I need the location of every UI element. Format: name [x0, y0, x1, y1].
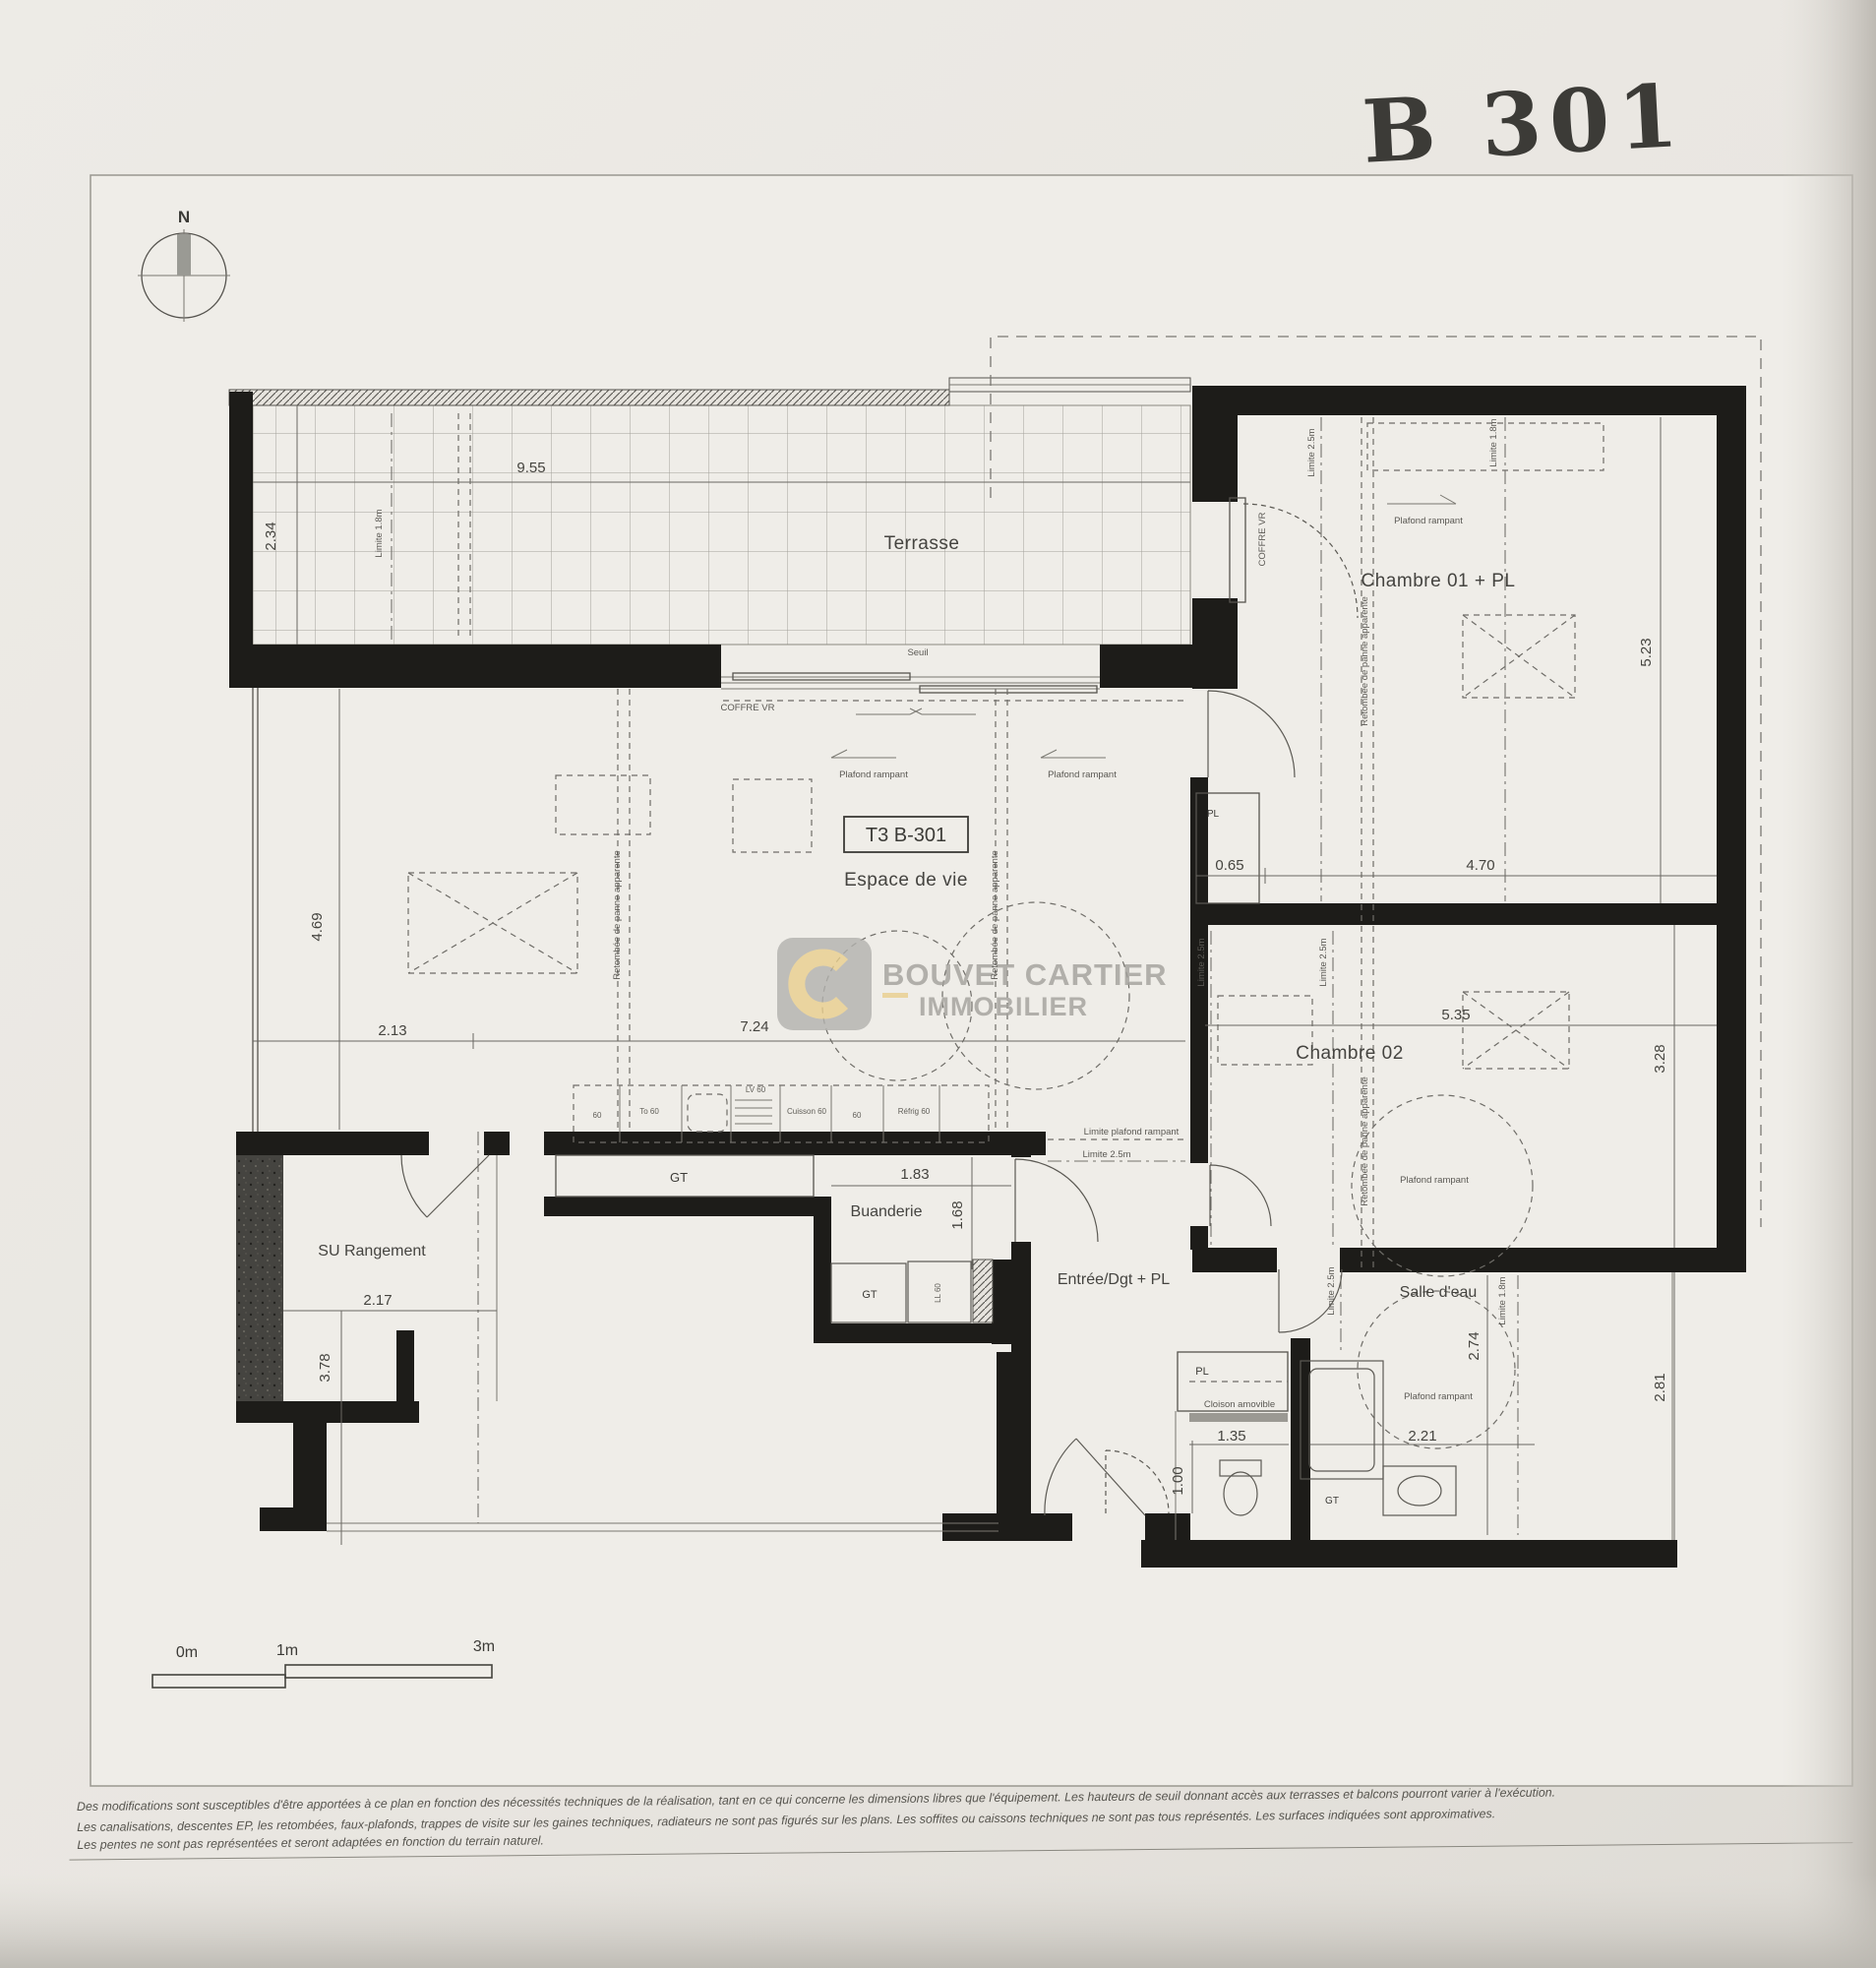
dim-sde-width: 2.21 — [1408, 1428, 1436, 1445]
dim-buanderie-width: 1.83 — [900, 1166, 929, 1183]
footer-disclaimer: Des modifications sont susceptibles d'êt… — [69, 1783, 1853, 1860]
kitchen-label-5: 60 — [853, 1111, 862, 1120]
ann-plafond-salle-eau: Plafond rampant — [1404, 1391, 1473, 1402]
ann-limite-plafond-rampant: Limite plafond rampant — [1084, 1127, 1180, 1138]
scale-0m: 0m — [176, 1644, 198, 1661]
dim-espace-height: 4.69 — [309, 912, 326, 941]
label-gt-salle-eau: GT — [1325, 1496, 1339, 1507]
dim-pl-width: 0.65 — [1215, 857, 1243, 874]
ann-plafond-chambre02: Plafond rampant — [1400, 1175, 1469, 1186]
label-gt-duct: GT — [670, 1170, 688, 1185]
ann-cloison-amovible: Cloison amovible — [1204, 1399, 1275, 1410]
scale-3m: 3m — [473, 1638, 495, 1655]
dim-chambre01-height: 5.23 — [1638, 638, 1655, 666]
dim-sde-height: 2.74 — [1466, 1331, 1483, 1360]
dim-terrace-depth: 2.34 — [263, 522, 279, 550]
scale-1m: 1m — [276, 1642, 298, 1659]
ann-limite25-chambre02-left: Limite 2.5m — [1196, 938, 1207, 986]
kitchen-label-6: Réfrig 60 — [898, 1107, 931, 1116]
ann-coffre-vr-vertical: COFFRE VR — [1257, 512, 1268, 566]
label-pl-chambre01: PL — [1207, 809, 1220, 820]
ann-limite25-chambre01: Limite 2.5m — [1306, 428, 1317, 476]
ann-limite25-chambre02-right: Limite 2.5m — [1318, 938, 1329, 986]
dim-wc-width: 1.35 — [1217, 1428, 1245, 1445]
terrace-railing-hatched — [229, 390, 949, 405]
room-label-rangement: SU Rangement — [318, 1243, 426, 1260]
dim-espace-l1: 2.13 — [378, 1022, 406, 1039]
thick-textured-wall — [236, 1155, 283, 1403]
photo-shadow-bottom — [0, 1875, 1876, 1968]
handwritten-unit-label: B 301 — [1360, 64, 1688, 183]
ann-limite18-chambre01: Limite 1.8m — [1488, 418, 1499, 466]
label-gt-closet: GT — [862, 1289, 877, 1301]
watermark-line2: IMMOBILIER — [919, 992, 1088, 1021]
dim-chambre01-width: 4.70 — [1466, 857, 1494, 874]
room-label-chambre01: Chambre 01 + PL — [1362, 571, 1516, 591]
cloison-amovible-wall — [1189, 1413, 1288, 1422]
ann-limite18-salle-eau: Limite 1.8m — [1497, 1276, 1508, 1324]
dim-rangement-height: 3.78 — [317, 1353, 333, 1382]
dim-chambre02-height: 3.28 — [1652, 1044, 1668, 1073]
ann-retombee-espace-right: Retombée de panne apparente — [990, 850, 1000, 980]
dim-buanderie-height: 1.68 — [949, 1200, 966, 1229]
label-lave-linge: LL 60 — [934, 1283, 942, 1303]
room-label-entree: Entrée/Dgt + PL — [1058, 1271, 1170, 1288]
kitchen-label-3: LV 60 — [746, 1085, 766, 1094]
ann-limite25-salle-eau: Limite 2.5m — [1326, 1266, 1337, 1315]
kitchen-label-4: Cuisson 60 — [787, 1107, 827, 1116]
unit-label-box: T3 B-301 — [844, 817, 968, 852]
floor-plan-svg: B 301 N — [0, 0, 1876, 1968]
dim-espace-l2: 7.24 — [740, 1018, 768, 1035]
ann-retombee-espace-left: Retombée de panne apparente — [612, 850, 623, 980]
dim-chambre02-width: 5.35 — [1441, 1007, 1470, 1023]
kitchen-label-1: 60 — [593, 1111, 602, 1120]
ann-retombee-chambre02: Retombée de panne apparente — [1360, 1076, 1370, 1206]
room-label-terrasse: Terrasse — [884, 533, 960, 554]
ann-plafond-espace-left: Plafond rampant — [839, 769, 908, 780]
watermark-line1: BOUVET CARTIER — [882, 957, 1168, 992]
dim-terrace-width: 9.55 — [516, 460, 545, 476]
footer-line3: Les pentes ne sont pas représentées et s… — [77, 1833, 544, 1852]
ann-seuil: Seuil — [907, 647, 928, 658]
ann-retombee-chambre01: Retombée de panne apparente — [1360, 596, 1370, 726]
unit-label: T3 B-301 — [866, 825, 946, 846]
label-pl-entree: PL — [1195, 1366, 1208, 1378]
ann-plafond-chambre01: Plafond rampant — [1394, 516, 1463, 526]
room-label-salle-eau: Salle d'eau — [1400, 1284, 1478, 1301]
ann-coffre-vr-horizontal: COFFRE VR — [721, 703, 775, 713]
scanned-floor-plan-photo: B 301 N — [0, 0, 1876, 1968]
photo-shadow-right — [1781, 0, 1876, 1968]
room-label-buanderie: Buanderie — [851, 1203, 923, 1220]
ann-limite18-terrace: Limite 1.8m — [374, 509, 385, 557]
room-label-chambre02: Chambre 02 — [1296, 1043, 1404, 1064]
compass-north-label: N — [178, 208, 190, 226]
kitchen-label-2: To 60 — [639, 1107, 659, 1116]
ann-plafond-espace-right: Plafond rampant — [1048, 769, 1117, 780]
dim-rangement-width: 2.17 — [363, 1292, 392, 1309]
ann-limite25-entree: Limite 2.5m — [1082, 1149, 1130, 1160]
dim-sde-zone-height: 2.81 — [1652, 1373, 1668, 1401]
room-label-espace: Espace de vie — [844, 870, 968, 891]
dim-wc-height: 1.00 — [1170, 1466, 1186, 1495]
